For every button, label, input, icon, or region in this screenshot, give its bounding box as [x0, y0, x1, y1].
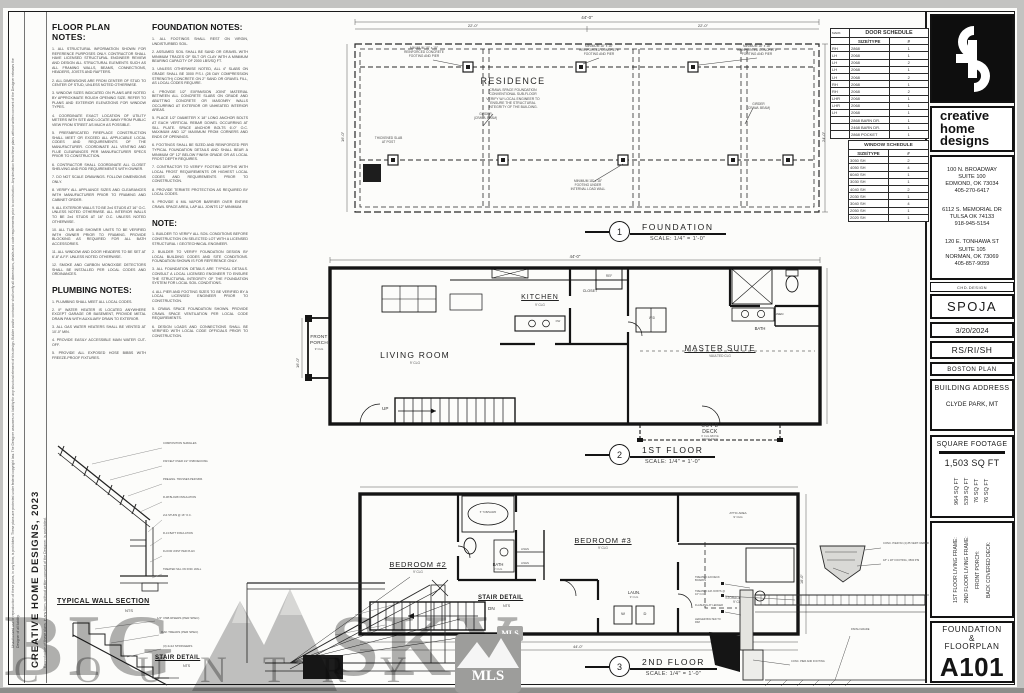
deck-detail-drawing [695, 540, 930, 690]
sqft-label-4: BACK COVERED DECK: [986, 526, 992, 614]
dim-right: 24'-0" [821, 102, 826, 142]
dim-first-overall: 44'-0" [535, 254, 615, 259]
ws-callout-4: R-38 BLOWN INSULATION [163, 496, 209, 499]
note-item: 1. ALL STRUCTURAL INFORMATION SHOWN FOR … [52, 47, 146, 75]
website-cell: CHD.DESIGN [930, 282, 1014, 292]
sqft-label-2: 2ND FLOOR LIVING FRAME: [964, 526, 970, 614]
note-item: 6. FOOTINGS SHALL BE SIZED AND REINFORCE… [152, 143, 248, 162]
deck-callout-6: FINISH GRADE [851, 628, 891, 631]
dim-seg2: 22'-0" [663, 23, 743, 28]
note-item: 11. ALL WINDOW AND DOOR HEADERS TO BE SE… [52, 250, 146, 259]
blueprint-sheet: Unauthorized use or reproduction of thes… [0, 0, 1024, 693]
dryer-label: D [637, 611, 653, 616]
note-item: 2. ALL DIMENSIONS ARE FROM CENTER OF STU… [52, 79, 146, 88]
door-size-header: SIZE/TYPE [850, 38, 890, 45]
note-item: 1. BUILDER TO VERIFY ALL SOIL CONDITIONS… [152, 232, 248, 246]
note-item: 4. PROVIDE EASILY ACCESSIBLE MAIN WATER … [52, 338, 146, 347]
deck-callout-5: CONC. PIER AND FOOTING [791, 660, 836, 663]
firm-addresses-cell: 100 N. BROADWAY SUITE 100 EDMOND, OK 730… [930, 155, 1014, 280]
deck-callout-4: LEDGER BOLTED TO RIM [695, 618, 725, 624]
margin-rule-1 [24, 11, 25, 683]
sqft-value-1: 964 SQ FT [954, 473, 960, 509]
door-row: RH20681 [831, 81, 929, 88]
plan-scale-text: SCALE: 1/4" = 1'-0" [646, 670, 702, 677]
door-row: LHR20681 [831, 102, 929, 109]
permit-code: RS/RI/SH [952, 345, 993, 355]
note-item: 7. CONTRACTOR TO VERIFY FOOTING DEPTHS W… [152, 165, 248, 184]
note-item: 3. UNLESS OTHERWISE NOTED, ALL 4" SLABS … [152, 67, 248, 86]
address-3: 120 E. TONHAWA ST SUITE 105 NORMAN, OK 7… [945, 239, 999, 268]
mls-logo-large: MLS [455, 634, 521, 693]
firm-name: creative home designs [940, 110, 989, 147]
note-item: 6. CONTRACTOR SHALL COORDINATE ALL CLOSE… [52, 163, 146, 172]
building-address-label: BUILDING ADDRESS [935, 385, 1010, 392]
room-label-kitchen: KITCHEN [500, 294, 580, 303]
door-row: LHR20681 [831, 95, 929, 102]
note-item: 5. CRAWL SPACE FOUNDATION SHOWN. PROVIDE… [152, 307, 248, 321]
firm-name-cell: creative home designs [930, 106, 1014, 152]
note-item: 2. ASSUMED SOIL SHALL BE SAND OR GRAVEL … [152, 50, 248, 64]
note-item: 4. PROVIDE 1/2" EXPANSION JOINT MATERIAL… [152, 90, 248, 113]
pier-callout-b: 18" x 18" FOOTING, 3500 PSI [883, 559, 929, 562]
pier-callout-3: MINIMUM 18" x 18" REINFORCED CONCRETE FO… [721, 44, 793, 56]
dim-second-overall: 44'-0" [538, 645, 618, 650]
note-item: 5. PLACE 1/2" DIAMETER X 18" LONG ANCHOR… [152, 116, 248, 139]
note-item: 5. PREFABRICATED FIREPLACE CONSTRUCTION … [52, 131, 146, 159]
wall-section-scale: NTS [125, 608, 155, 613]
note-title: NOTE: [152, 219, 248, 228]
chd-logo-icon [944, 26, 1000, 92]
side-firm-line: CREATIVE HOME DESIGNS, 2023 [30, 430, 42, 668]
plan-name-cell: BOSTON PLAN [930, 362, 1014, 376]
ws-callout-2: 15# FELT OVER 1/2" OSB DECKING [163, 460, 209, 463]
note-item: 3. ALL GAS WATER HEATERS SHALL BE VENTED… [52, 325, 146, 334]
title-rule [585, 454, 609, 456]
note-item: 8. PROVIDE TERMITE PROTECTION AS REQUIRE… [152, 188, 248, 197]
door-row: 2868 BARN DR.1 [831, 117, 929, 124]
sheet-id-cell: FOUNDATION & FLOORPLAN A101 [930, 621, 1014, 683]
room-label-bath1: BATH [740, 326, 780, 331]
room-clg-porch: 9' CLG [302, 348, 336, 351]
stairs-up-label: UP [382, 406, 388, 412]
washer-label: W [615, 611, 631, 616]
stairs-dn-label: DN [488, 606, 495, 612]
first-floor-plan: FRONT PORCH 9' CLG LIVING ROOM 9' CLG KI… [300, 256, 835, 442]
residence-notes: CRAWL SPACE FOUNDATION CONVENTIONAL SUB-… [453, 88, 573, 109]
plan-number-2: 2 [609, 444, 630, 465]
stair-framing-title: STAIR DETAIL [478, 595, 553, 603]
sheet-title: FOUNDATION & FLOORPLAN [942, 626, 1002, 652]
deck-callout-3: FLASHING AT LEDGER [695, 604, 725, 607]
door-row: 2468 BARN DR.1 [831, 124, 929, 131]
plan-title-text: FOUNDATION [630, 222, 726, 235]
door-row: LH20682 [831, 73, 929, 80]
note-item: 1. ALL FOOTINGS SHALL REST ON VIRGIN, UN… [152, 37, 248, 46]
sqft-labels-cell: 1ST FLOOR LIVING FRAME: 2ND FLOOR LIVING… [930, 521, 1014, 618]
foundation-plan: RESIDENCE CRAWL SPACE FOUNDATION CONVENT… [333, 14, 833, 216]
room-clg-laun: 9' CLG [610, 596, 658, 599]
tub-label: 5' TUB/SHWR [466, 511, 510, 514]
plan-title-text: 1ST FLOOR [630, 445, 715, 458]
sqft-total: 1,503 SQ FT [945, 458, 1000, 468]
sqft-label-1: 1ST FLOOR LIVING FRAME: [953, 526, 959, 614]
room-label-linen1: LINEN [762, 313, 796, 317]
door-row: LH20681 [831, 109, 929, 116]
door-row: 2868 POCKET1 [831, 131, 929, 138]
note-item: 4. ALL PIER AND FOOTING SIZES TO BE VERI… [152, 290, 248, 304]
sqft-value-4: 76 SQ FT [984, 473, 990, 509]
ws-callout-3: PRE-ENG. TRUSSES PER MFR. [163, 478, 209, 481]
note-item: 2. BUILDER TO VERIFY FOUNDATION DESIGN B… [152, 250, 248, 264]
girder-callout-2: GIRDER (CRAWL BEAM) [731, 102, 786, 110]
note-item: 2. IF WATER HEATER IS LOCATED ANYWHERE E… [52, 308, 146, 322]
pier-callout-1: MINIMUM 18" x 18" REINFORCED CONCRETE FO… [388, 46, 460, 58]
address-1: 100 N. BROADWAY SUITE 100 EDMOND, OK 730… [945, 167, 998, 196]
dim-left: 16'-0" [340, 102, 345, 142]
room-label-linen2b: LINEN [508, 562, 542, 565]
client-name: SPOJA [947, 299, 997, 314]
firm-logo-cell [930, 14, 1014, 103]
plan-name: BOSTON PLAN [947, 366, 996, 373]
door-row: RH20682 [831, 88, 929, 95]
window-size-header: SIZE/TYPE [849, 150, 889, 157]
window-row: 3040 SH4 [849, 200, 929, 207]
residence-label: RESIDENCE [453, 76, 573, 87]
deck-detail: CONC. PIER W/ (4) #5 VERT. REBAR 18" x 1… [695, 540, 930, 690]
ws-callout-7: FLOOR JOIST PER PLAN [163, 550, 209, 553]
ws-callout-1: COMPOSITION SHINGLES [163, 442, 209, 445]
window-row: 4040 SH2 [849, 185, 929, 192]
note-item: 3. WINDOW SIZES INDICATED ON PLANS ARE N… [52, 91, 146, 110]
room-clg-master: VAULTED CLG [660, 354, 780, 358]
stair-framing-scale: NTS [503, 604, 533, 608]
square-footage-cell: SQUARE FOOTAGE 1,503 SQ FT 964 SQ FT 539… [930, 435, 1014, 518]
room-label-porch: FRONT PORCH [302, 334, 336, 345]
foundation-notes-column: FOUNDATION NOTES: 1. ALL FOOTINGS SHALL … [152, 22, 248, 342]
room-label-bed3: BEDROOM #3 [548, 536, 658, 545]
wall-section-detail: COMPOSITION SHINGLES 15# FELT OVER 1/2" … [50, 428, 210, 593]
note-item: 9. PROVIDE 6 MIL VAPOR BARRIER OVER ENTI… [152, 200, 248, 209]
window-row: 3050 SH2 [849, 157, 929, 164]
copyright-disclaimer: Unauthorized use or reproduction of thes… [11, 48, 21, 648]
attic-area-label: ATTIC AREA 9' CLG [708, 512, 768, 520]
room-clg-living: 9' CLG [360, 361, 470, 365]
note-item: 7. DO NOT SCALE DRAWINGS. FOLLOW DIMENSI… [52, 175, 146, 184]
ws-callout-5: 2x4 STUDS @ 16" O.C. [163, 514, 209, 517]
sqft-label-3: FRONT PORCH: [975, 526, 981, 614]
floor-plan-notes-column: FLOOR PLAN NOTES: 1. ALL STRUCTURAL INFO… [52, 22, 146, 364]
ws-callout-8: TREATED SILL ON FND. WALL [163, 568, 209, 571]
door-row: LH20682 [831, 59, 929, 66]
door-row: LH20681 [831, 66, 929, 73]
sqft-label: SQUARE FOOTAGE [937, 441, 1008, 448]
sqft-rule [939, 451, 1005, 454]
room-label-linen2a: LINEN [508, 548, 542, 551]
girder-callout-1: GIRDER (CRAWL BEAM) [458, 112, 513, 120]
window-qty-header: # [889, 150, 929, 157]
slab-callout: THICKENED SLAB AT POST [361, 136, 416, 144]
side-sub-line: Reproduction of these plans, in any form… [43, 438, 47, 668]
door-mark-header: MARK [831, 29, 850, 38]
firm-website: CHD.DESIGN [957, 285, 987, 290]
client-cell: SPOJA [930, 294, 1014, 319]
title-rule [585, 231, 609, 233]
door-row: LH20681 [831, 52, 929, 59]
plan-scale-text: SCALE: 1/4" = 1'-0" [645, 458, 701, 465]
deck-callout-1: TREATED 2x6 DECK BOARDS [695, 576, 725, 582]
note-item: 5. PROVIDE ALL EXPOSED HOSE BIBBS WITH F… [52, 351, 146, 360]
window-row: 2030 SH1 [849, 193, 929, 200]
watermark-mountain-icon [192, 583, 337, 691]
plan-number-3: 3 [609, 656, 630, 677]
dw-label: DW [548, 320, 568, 323]
note-item: 9. ALL EXTERIOR WALLS TO BE 2x4 STUDS AT… [52, 206, 146, 225]
plan-scale-text: SCALE: 1/4" = 1'-0" [650, 235, 706, 242]
plan-date: 3/20/2024 [955, 326, 988, 335]
window-row: 3030 SH1 [849, 178, 929, 185]
window-row: 2020 SH1 [849, 214, 929, 221]
room-clg-kitchen: 9' CLG [500, 303, 580, 307]
sheet-number: A101 [940, 652, 1004, 683]
door-schedule: MARK DOOR SCHEDULE SIZE/TYPE # RH28681 L… [830, 28, 929, 139]
room-label-deck: COV'D DECK [675, 423, 745, 436]
room-clg-deck: 9' CLG ABOVE WOOD DECK [675, 435, 745, 441]
footing-callout: MINIMUM 18" x 18" FOOTING UNDER INTERNAL… [548, 179, 628, 191]
wd-label: W/D [638, 316, 666, 320]
sqft-label-list: 1ST FLOOR LIVING FRAME: 2ND FLOOR LIVING… [953, 526, 992, 614]
first-floor-plan-title: 2 1ST FLOOR SCALE: 1/4" = 1'-0" [585, 444, 715, 465]
building-address-value: CLYDE PARK, MT [946, 401, 998, 408]
mls-large-text: MLS [455, 668, 521, 685]
door-qty-header: # [889, 38, 929, 45]
note-item: 3. ALL FOUNDATION DETAILS ARE TYPICAL DE… [152, 267, 248, 286]
door-schedule-title: DOOR SCHEDULE [850, 29, 929, 38]
plumbing-notes-title: PLUMBING NOTES: [52, 285, 146, 295]
door-row: RH28681 [831, 45, 929, 52]
note-item: 12. SMOKE AND CARBON MONOXIDE DETECTORS … [52, 263, 146, 277]
window-schedule: WINDOW SCHEDULE SIZE/TYPE # 3050 SH2 405… [848, 140, 929, 222]
room-label-master: MASTER SUITE [660, 344, 780, 354]
address-2: 6112 S. MEMORIAL DR TULSA OK 74133 918-9… [942, 207, 1002, 229]
dim-seg1: 22'-0" [433, 23, 513, 28]
note-item: 1. PLUMBING SHALL MEET ALL LOCAL CODES. [52, 300, 146, 305]
date-cell: 3/20/2024 [930, 322, 1014, 338]
sqft-value-3: 76 SQ FT [974, 473, 980, 509]
sqft-value-2: 539 SQ FT [964, 473, 970, 509]
room-label-closet: CLOSET [568, 289, 612, 293]
dim-first-left: 16'-0" [295, 328, 300, 368]
note-item: 10. ALL TUB AND SHOWER UNITS TO BE VERIF… [52, 228, 146, 247]
window-row: 6040 SH1 [849, 171, 929, 178]
permit-cell: RS/RI/SH [930, 341, 1014, 359]
pier-callout-2: MINIMUM 18" x 18" REINFORCED CONCRETE FO… [563, 44, 635, 56]
ref-label: REF [594, 274, 624, 278]
note-item: 6. DESIGN LOADS AND CONNECTIONS SHALL BE… [152, 325, 248, 339]
window-schedule-title: WINDOW SCHEDULE [849, 141, 929, 150]
room-clg-bed3: 9' CLG [548, 546, 658, 550]
window-row: 2050 SH1 [849, 207, 929, 214]
pier-callout-a: CONC. PIER W/ (4) #5 VERT. REBAR [883, 542, 929, 545]
room-label-living: LIVING ROOM [360, 350, 470, 361]
note-item: 8. VERIFY ALL APPLIANCE SIZES AND CLEARA… [52, 188, 146, 202]
title-rule [585, 666, 609, 668]
note-item: 4. COORDINATE EXACT LOCATION OF UTILITY … [52, 114, 146, 128]
foundation-notes-title: FOUNDATION NOTES: [152, 22, 248, 32]
building-address-cell: BUILDING ADDRESS CLYDE PARK, MT [930, 379, 1014, 431]
ws-callout-6: R-13 BATT INSULATION [163, 532, 209, 535]
deck-callout-2: TREATED 2x8 JOISTS @ 16" O.C. [695, 590, 725, 596]
sqft-values: 964 SQ FT 539 SQ FT 76 SQ FT 76 SQ FT [954, 473, 990, 509]
plan-number-1: 1 [609, 221, 630, 242]
window-row: 4050 SH4 [849, 164, 929, 171]
foundation-plan-title: 1 FOUNDATION SCALE: 1/4" = 1'-0" [585, 221, 726, 242]
floor-plan-notes-title: FLOOR PLAN NOTES: [52, 22, 146, 42]
wall-section-title: TYPICAL WALL SECTION [57, 598, 197, 607]
dim-overall: 44'-0" [547, 15, 627, 21]
